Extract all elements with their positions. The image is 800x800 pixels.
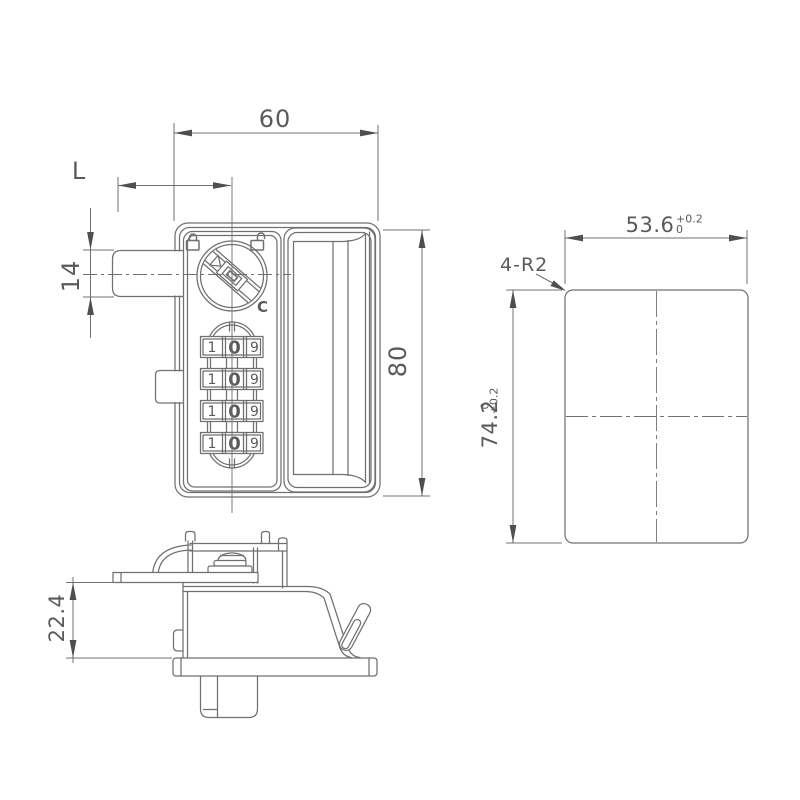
dim-60-label: 60 [259, 105, 292, 133]
dim-height-80: 80 [383, 230, 430, 496]
base-plate [173, 658, 377, 676]
body-profile [174, 583, 361, 658]
dim-width-60: 60 [174, 105, 378, 221]
latch-profile [201, 677, 258, 718]
note-4-R2-label: 4-R2 [500, 254, 548, 276]
drawing-canvas: C 1 0 9 [0, 0, 800, 800]
dim-L-label: L [72, 157, 86, 185]
dim-tube-14: 14 [57, 208, 114, 338]
front-view: C 1 0 9 [83, 177, 380, 513]
dim-grip-L: L [72, 157, 231, 212]
wheel-digit: 9 [250, 436, 259, 452]
lock-technical-drawing: C 1 0 9 [0, 0, 800, 800]
wheel-digit: 1 [208, 404, 217, 420]
wheel-digit: 1 [208, 436, 217, 452]
dim-22-4-label: 22.4 [45, 594, 69, 643]
dim-53-6-label: 53.6 [626, 213, 675, 237]
dim-depth-22-4: 22.4 [45, 577, 172, 663]
wheel-digit: 0 [228, 402, 241, 423]
corner-radius-note: 4-R2 [500, 254, 566, 291]
flange-plate [113, 573, 258, 583]
wheel-digit: 1 [208, 340, 217, 356]
wheel-digit: 9 [250, 372, 259, 388]
dim-cutout-width: 53.6 +0.2 0 [565, 213, 747, 285]
wheel-digit: 9 [250, 404, 259, 420]
dim-cutout-height: 74.2 +0.2 0 [478, 290, 562, 543]
dim-80-label: 80 [384, 345, 412, 378]
wheel-digit: 1 [208, 372, 217, 388]
closed-padlock-icon [187, 234, 200, 250]
wheel-digit: 0 [228, 338, 241, 359]
side-view: 22.4 [45, 532, 377, 718]
dial-dome-profile [153, 545, 192, 575]
handle-recess-panel [284, 228, 375, 492]
dim-14-label: 14 [57, 260, 85, 293]
wheel-digit: 0 [228, 370, 241, 391]
latch-tab [156, 371, 184, 404]
back-clip [186, 532, 196, 573]
dim-74-2-tol-lower: 0 [479, 403, 492, 410]
reset-knob-profile [208, 553, 252, 573]
wheel-digit: 9 [250, 340, 259, 356]
cam-profile [337, 601, 372, 652]
cutout-view: 53.6 +0.2 0 74.2 +0.2 0 4-R2 [478, 213, 748, 544]
dim-53-6-tol-lower: 0 [676, 223, 683, 236]
mounting-tube [113, 251, 184, 297]
dial-c-label: C [257, 298, 268, 316]
wheel-digit: 0 [228, 434, 241, 455]
